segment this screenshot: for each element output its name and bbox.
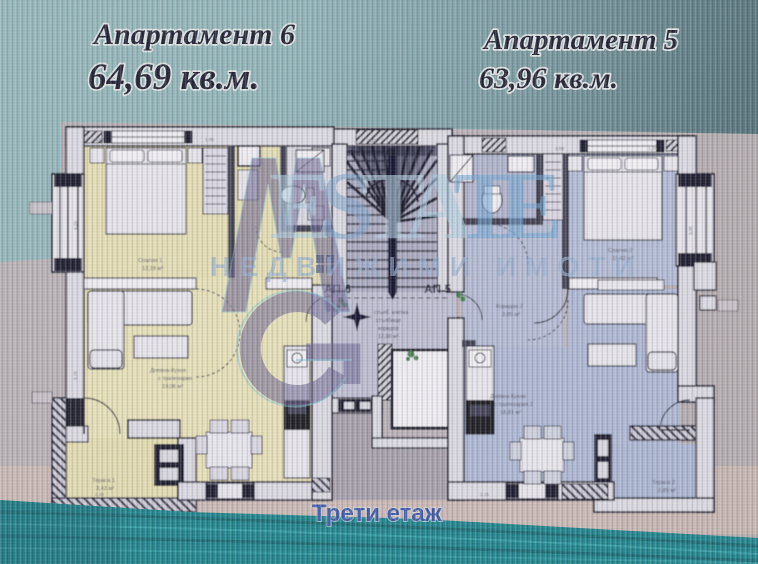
svg-text:Трети етаж: Трети етаж — [312, 500, 443, 527]
